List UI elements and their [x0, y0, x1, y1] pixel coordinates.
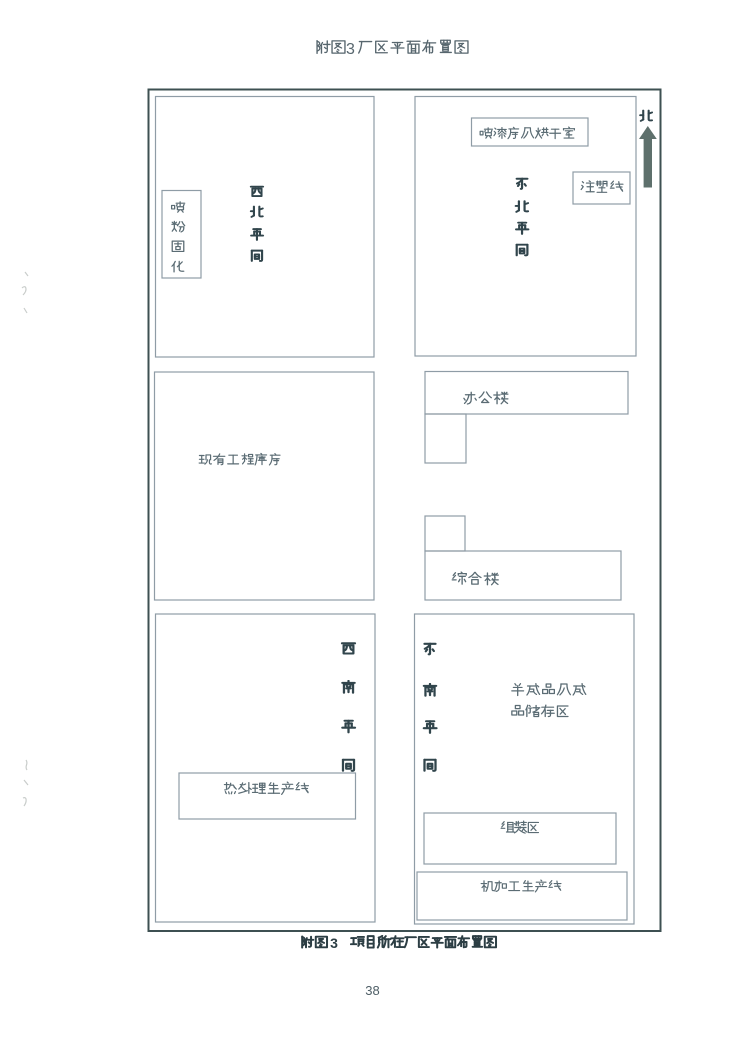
svg-text:3: 3 — [330, 935, 338, 951]
svg-text:3: 3 — [346, 41, 355, 58]
svg-text:38: 38 — [365, 983, 379, 998]
